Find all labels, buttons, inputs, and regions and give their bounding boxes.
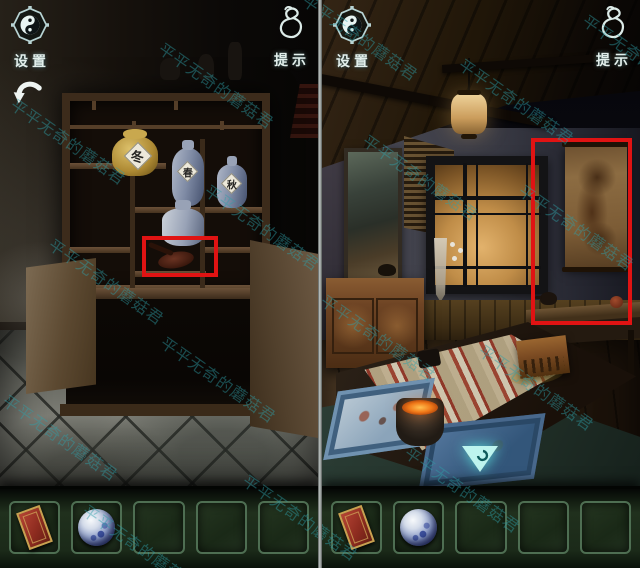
panel-tea-room: 设置 提示 — [322, 0, 640, 568]
gourd-icon — [597, 5, 628, 48]
undo-arrow-icon — [12, 99, 46, 116]
panel-divider — [318, 0, 322, 568]
back-button[interactable] — [12, 76, 46, 117]
inventory-slots — [0, 489, 318, 568]
silhouette-vase — [198, 54, 214, 80]
white-wall-hanging — [434, 238, 447, 302]
vase-label-text: 春 — [183, 164, 193, 179]
hint-label: 提示 — [592, 50, 632, 70]
inventory-slot-1[interactable] — [9, 501, 60, 554]
inventory-slot-4[interactable] — [196, 501, 247, 554]
panel-shelf-room: 冬 春 秋 — [0, 0, 318, 568]
flower-branch — [448, 242, 468, 272]
yinyang-octagon-icon — [333, 6, 371, 49]
silhouette-vase — [160, 58, 180, 80]
inventory-slot-3[interactable] — [455, 501, 506, 554]
inventory-slot-3[interactable] — [133, 501, 184, 554]
hint-button[interactable]: 提示 — [592, 5, 632, 70]
settings-button[interactable]: 设置 — [10, 6, 50, 71]
inventory-slot-4[interactable] — [518, 501, 569, 554]
inventory-slot-2[interactable] — [393, 501, 444, 554]
settings-button[interactable]: 设置 — [332, 6, 372, 71]
shelf-plank — [70, 247, 134, 253]
window-lattice — [526, 163, 528, 287]
window-lattice — [433, 196, 541, 200]
inventory-slots — [322, 489, 640, 568]
shelf-top-rail — [70, 125, 262, 129]
settings-label: 设置 — [332, 51, 372, 71]
down-arrow-ornament-icon — [460, 461, 500, 478]
inventory-slot-5[interactable] — [580, 501, 631, 554]
rail-stub — [220, 121, 224, 130]
gourd-icon — [275, 5, 306, 48]
window-lattice — [433, 213, 541, 215]
yinyang-octagon-icon — [11, 6, 49, 49]
charcoal-brazier[interactable] — [396, 398, 444, 446]
incense-censer[interactable] — [378, 264, 396, 276]
desk-leg — [628, 330, 634, 376]
inventory-bar — [0, 486, 318, 568]
rail-stub — [174, 101, 178, 110]
navigate-down-button[interactable] — [460, 444, 500, 479]
game-screenshot: 冬 春 秋 — [0, 0, 640, 568]
red-talisman-card[interactable] — [16, 505, 53, 550]
red-talisman-card[interactable] — [338, 505, 375, 550]
settings-label: 设置 — [10, 51, 50, 71]
blue-porcelain-ball[interactable] — [78, 509, 115, 546]
blue-porcelain-ball[interactable] — [400, 509, 437, 546]
vase-label-text: 秋 — [227, 176, 237, 191]
hint-button[interactable]: 提示 — [270, 5, 310, 70]
jar-label-text: 冬 — [131, 146, 144, 165]
inventory-slot-5[interactable] — [258, 501, 309, 554]
inventory-slot-2[interactable] — [71, 501, 122, 554]
cabinet-door-right[interactable] — [250, 240, 318, 438]
rail-stub — [92, 101, 96, 110]
cabinet-door-left[interactable] — [26, 258, 96, 394]
wooden-box[interactable] — [516, 335, 570, 379]
hint-label: 提示 — [270, 50, 310, 70]
inventory-slot-1[interactable] — [331, 501, 382, 554]
highlight-rect-ladle — [142, 236, 218, 277]
silhouette-bottle — [228, 42, 242, 80]
cabinet-base — [60, 404, 268, 416]
highlight-rect-scroll — [531, 138, 632, 325]
paper-lantern[interactable] — [451, 94, 487, 134]
inventory-bar — [322, 486, 640, 568]
